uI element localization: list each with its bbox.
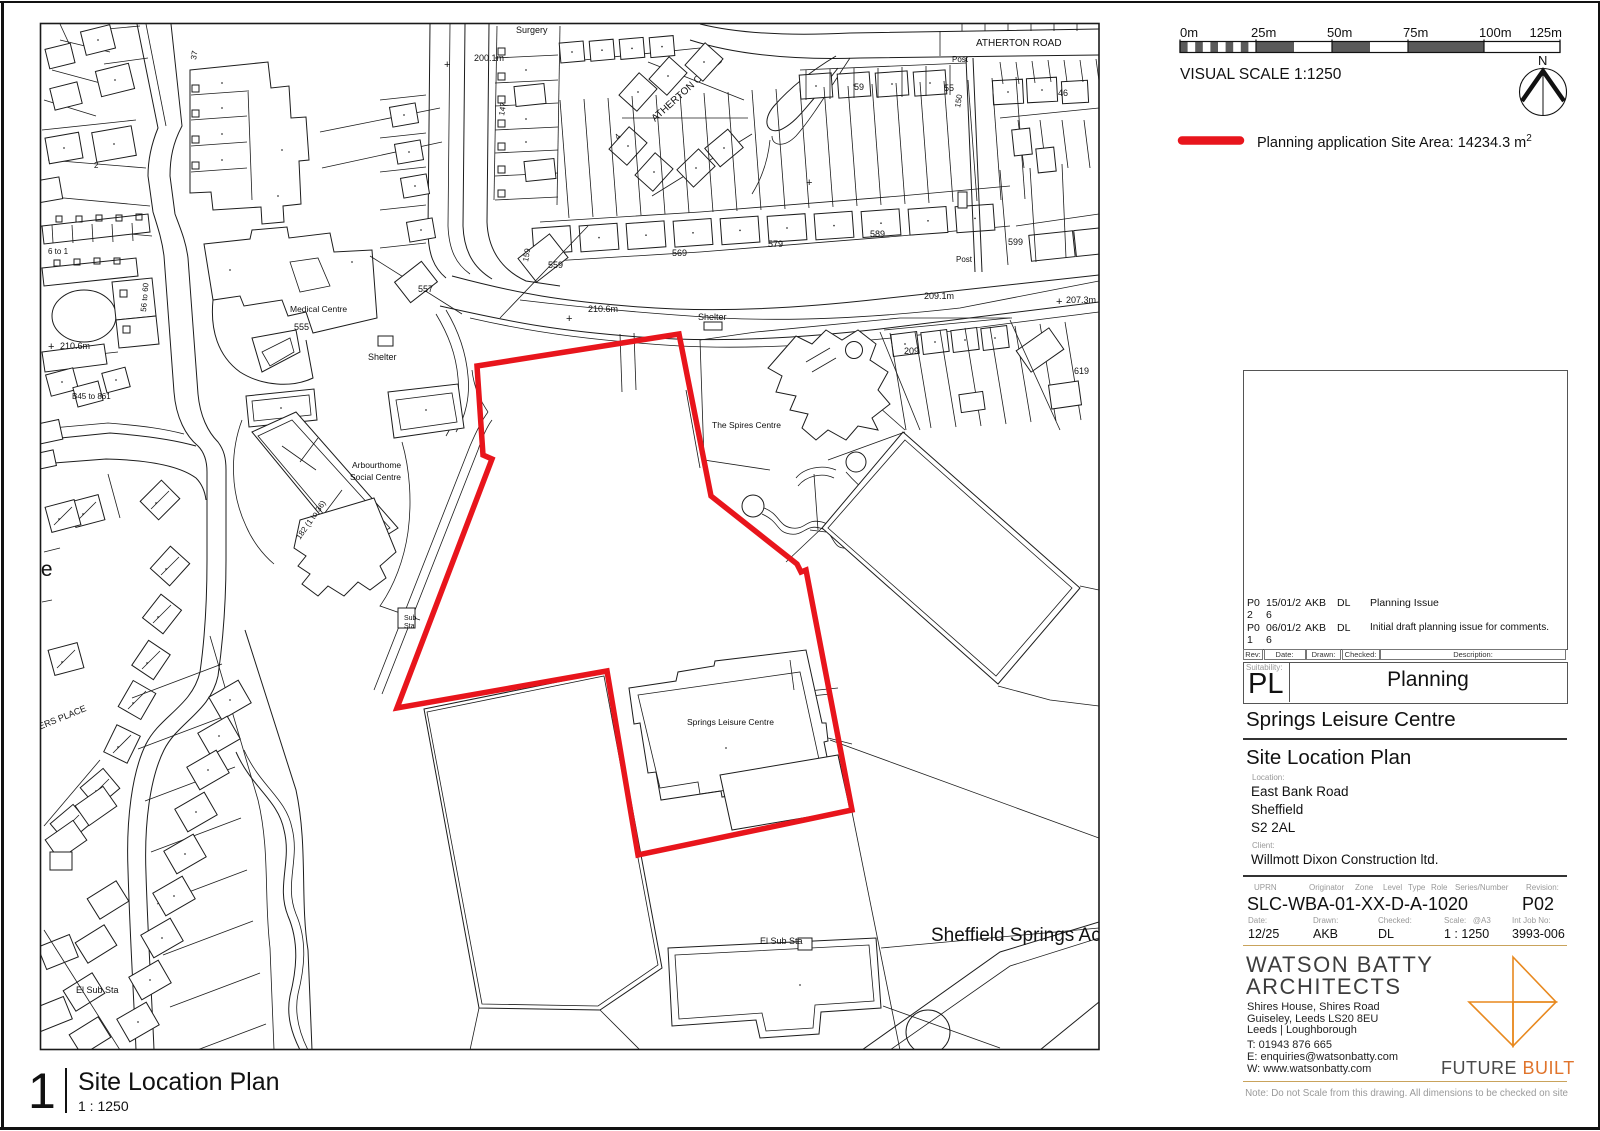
svg-text:207.3m: 207.3m [1066,295,1096,305]
svg-text:+: + [444,59,450,71]
svg-text:569: 569 [672,248,687,258]
svg-text:209.1m: 209.1m [924,291,954,301]
svg-text:Post: Post [956,255,973,264]
svg-text:37: 37 [189,49,200,60]
svg-text:Shelter: Shelter [368,352,397,362]
svg-text:Sub: Sub [404,615,417,622]
svg-text:Springs Leisure Centre: Springs Leisure Centre [687,717,774,727]
svg-text:147: 147 [497,101,508,116]
svg-text:Arbourthome: Arbourthome [352,460,401,470]
svg-text:El Sub Sta: El Sub Sta [760,936,803,946]
svg-text:557: 557 [418,284,433,294]
svg-text:59: 59 [854,82,864,92]
svg-text:619: 619 [1074,366,1089,376]
svg-text:6 to 1: 6 to 1 [48,247,69,256]
svg-text:46: 46 [1058,88,1068,98]
svg-text:210.6m: 210.6m [588,304,618,314]
svg-text:589: 589 [870,229,885,239]
svg-text:The Spires Centre: The Spires Centre [712,420,781,430]
svg-text:te: te [35,558,53,581]
svg-text:Post: Post [952,55,969,64]
svg-text:B45 to 861: B45 to 861 [72,392,111,401]
svg-text:+: + [806,177,812,189]
svg-text:NERS PLACE: NERS PLACE [31,703,88,734]
svg-text:55: 55 [944,83,954,93]
svg-text:Sta: Sta [404,623,415,630]
svg-text:579: 579 [768,239,783,249]
svg-text:2: 2 [94,161,99,170]
svg-text:555: 555 [294,322,309,332]
svg-text:+: + [566,313,572,325]
svg-text:150: 150 [953,93,964,108]
svg-text:+: + [1056,296,1062,308]
svg-text:Shelter: Shelter [698,312,727,322]
svg-text:209: 209 [904,346,919,356]
svg-text:599: 599 [1008,237,1023,247]
svg-text:Medical Centre: Medical Centre [290,304,347,314]
svg-text:Sheffield Springs Aca: Sheffield Springs Aca [931,925,1112,946]
svg-text:Social Centre: Social Centre [350,472,401,482]
svg-text:Surgery: Surgery [516,25,548,35]
svg-text:210.6m: 210.6m [60,341,90,351]
svg-text:+: + [48,341,54,353]
svg-text:ATHERTON ROAD: ATHERTON ROAD [976,38,1062,49]
svg-text:559: 559 [548,260,563,270]
svg-text:200.1m: 200.1m [474,53,504,63]
